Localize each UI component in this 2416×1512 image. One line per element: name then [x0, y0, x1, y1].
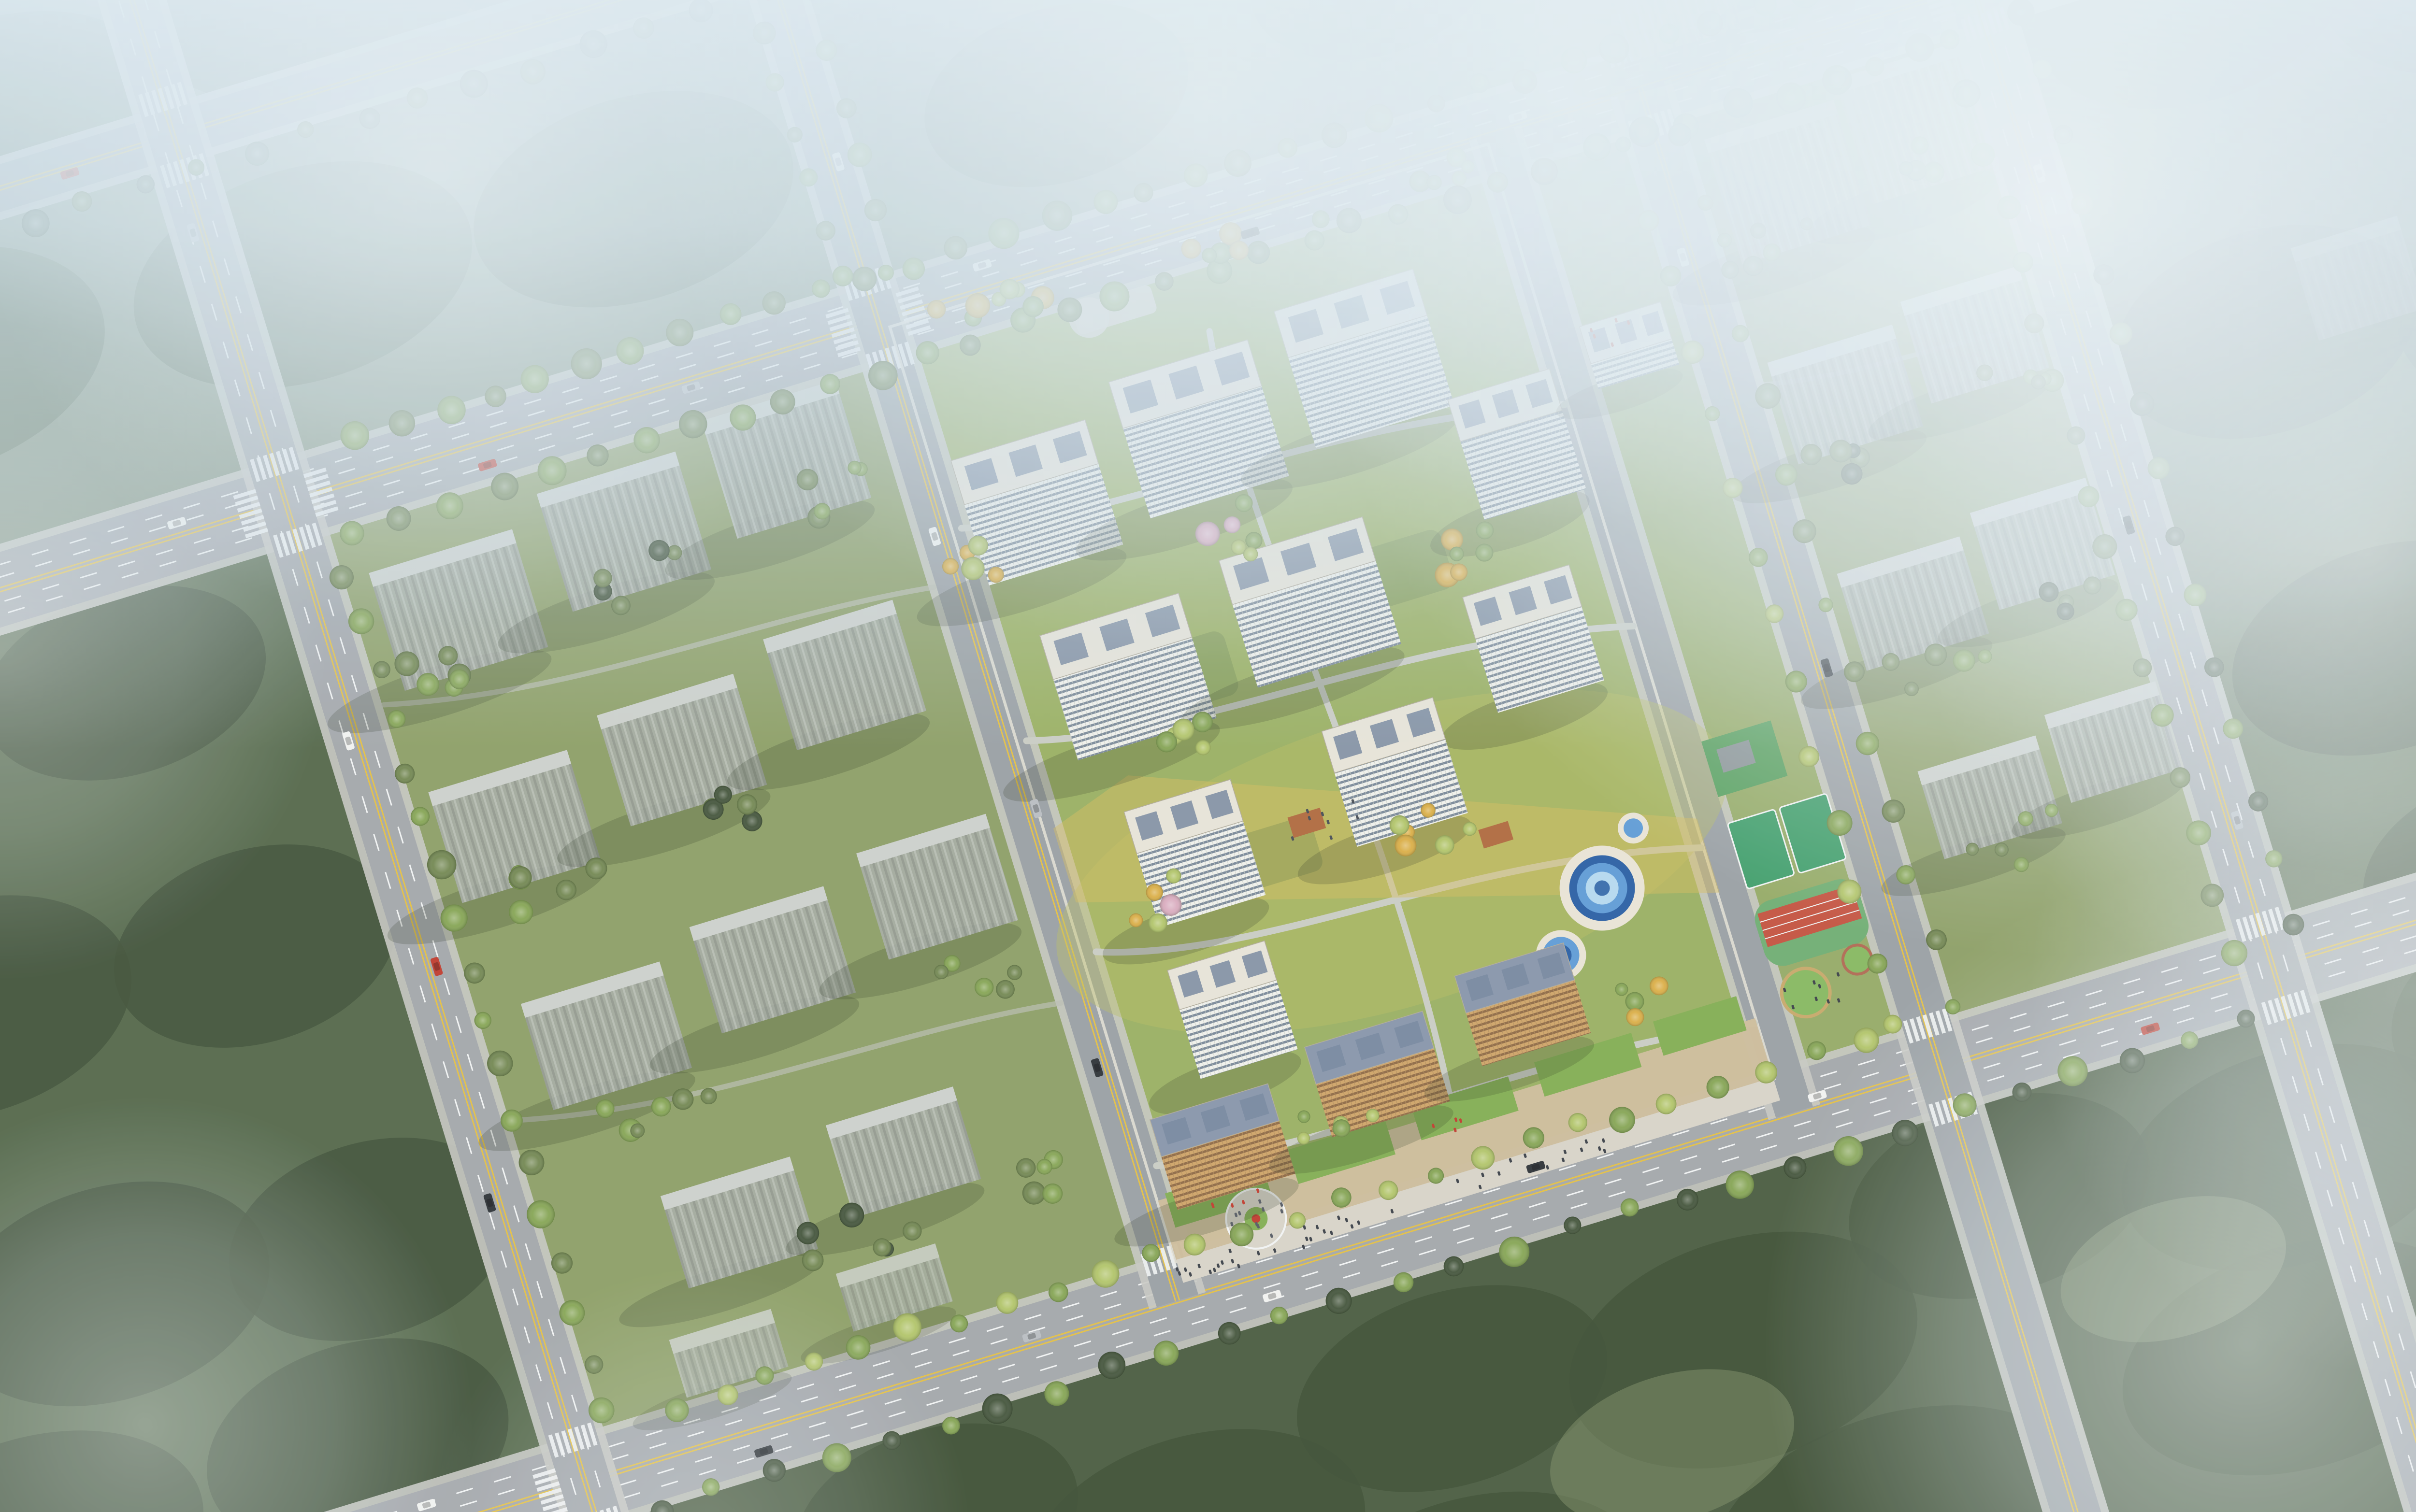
atmosphere-overlay — [0, 0, 2416, 1512]
masterplan-render — [0, 0, 2416, 1512]
haze-veil — [0, 0, 2416, 1512]
aerial-render-canvas — [0, 0, 2416, 1512]
